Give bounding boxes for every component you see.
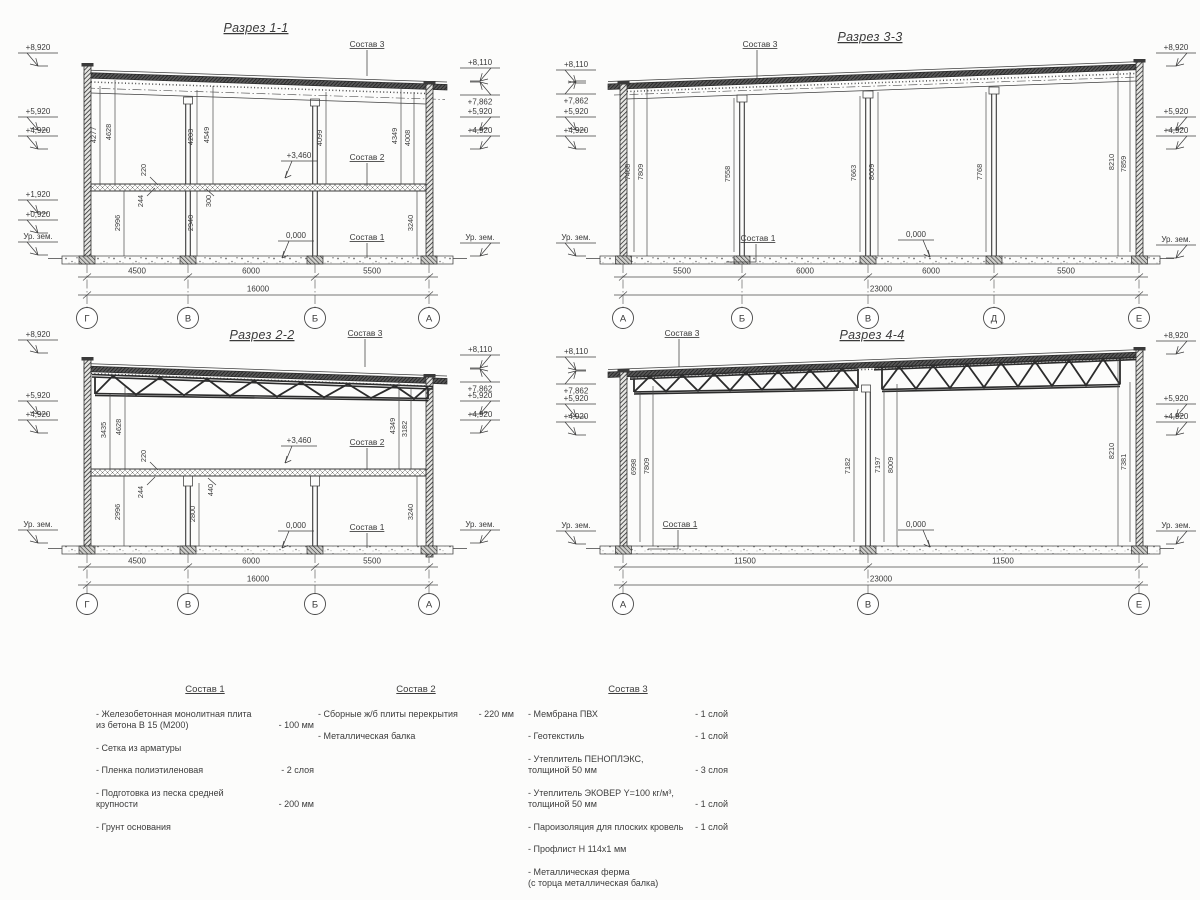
svg-text:+5,920: +5,920	[564, 107, 589, 116]
svg-text:4500: 4500	[128, 557, 146, 566]
svg-text:5500: 5500	[363, 267, 381, 276]
vdim-texts: 7468 7809 7558 7663 8009 7768 8210 7859	[623, 154, 1128, 182]
svg-text:+5,920: +5,920	[1164, 394, 1189, 403]
svg-text:+8,920: +8,920	[26, 43, 51, 52]
svg-text:11500: 11500	[992, 557, 1014, 566]
svg-text:+8,920: +8,920	[1164, 43, 1189, 52]
svg-text:6000: 6000	[242, 267, 260, 276]
svg-text:Е: Е	[1136, 314, 1142, 325]
elevation-marks-right: +8,110 +7,862 +5,920 +4,920 Ур. зем.	[460, 58, 500, 256]
section-title: Разрез 4-4	[840, 328, 905, 342]
grid-bubbles: Г В Б А	[77, 594, 440, 615]
span-dims: 4500 6000 5500 16000	[78, 264, 438, 307]
svg-text:2996: 2996	[113, 215, 122, 231]
legend-item: - Грунт основания	[96, 822, 314, 834]
legend-item: - Пароизоляция для плоских кровель- 1 сл…	[528, 822, 728, 834]
svg-text:7558: 7558	[723, 166, 732, 182]
sostav3-label: Состав 3	[350, 39, 385, 49]
structure	[48, 357, 467, 557]
svg-text:23000: 23000	[870, 285, 893, 294]
svg-text:4349: 4349	[390, 128, 399, 144]
svg-text:+8,920: +8,920	[26, 330, 51, 339]
structure	[586, 59, 1174, 264]
svg-text:Г: Г	[84, 600, 89, 611]
svg-text:Д: Д	[991, 314, 998, 325]
svg-text:+8,920: +8,920	[1164, 331, 1189, 340]
svg-text:16000: 16000	[247, 285, 270, 294]
svg-text:+4,920: +4,920	[1164, 126, 1189, 135]
svg-text:+8,110: +8,110	[468, 58, 493, 67]
svg-text:+7,862: +7,862	[468, 98, 493, 107]
svg-text:В: В	[865, 600, 871, 611]
level-zero: 0,000	[906, 520, 927, 529]
level-zero: 0,000	[286, 521, 307, 530]
svg-text:4277: 4277	[89, 127, 98, 143]
sections-drawing: Разрез 1-1 4277 4628 220 244 2	[0, 0, 1200, 660]
legend-sostav-1: Состав 1 - Железобетонная монолитная пли…	[96, 684, 314, 844]
section-1-1: Разрез 1-1 4277 4628 220 244 2	[18, 21, 500, 329]
svg-text:244: 244	[136, 195, 145, 207]
legend-item: - Сборные ж/б плиты перекрытия- 220 мм	[318, 709, 514, 721]
svg-text:440: 440	[206, 484, 215, 496]
svg-text:11500: 11500	[734, 557, 756, 566]
legend-sostav-3: Состав 3 - Мембрана ПВХ- 1 слой - Геотек…	[528, 684, 728, 900]
svg-text:2940: 2940	[186, 215, 195, 231]
svg-text:3240: 3240	[406, 215, 415, 231]
svg-text:6998: 6998	[629, 459, 638, 475]
svg-text:2800: 2800	[188, 506, 197, 522]
legend-item: - Железобетонная монолитная плита из бет…	[96, 709, 314, 732]
svg-text:7182: 7182	[843, 458, 852, 474]
svg-text:+4,920: +4,920	[26, 410, 51, 419]
svg-text:23000: 23000	[870, 575, 893, 584]
legend-heading: Состав 2	[318, 684, 514, 696]
svg-text:Б: Б	[312, 600, 318, 611]
elevation-marks-left: +8,920 +5,920 +4,920 +1,920 +0,920 Ур. з…	[18, 43, 58, 255]
svg-text:6000: 6000	[242, 557, 260, 566]
svg-text:5500: 5500	[673, 267, 691, 276]
svg-text:8210: 8210	[1107, 443, 1116, 459]
svg-text:+5,920: +5,920	[564, 394, 589, 403]
svg-text:Ур. зем.: Ур. зем.	[23, 520, 52, 529]
svg-text:Ур. зем.: Ур. зем.	[561, 521, 590, 530]
svg-text:2996: 2996	[113, 504, 122, 520]
svg-text:244: 244	[136, 486, 145, 498]
svg-text:300: 300	[204, 195, 213, 207]
legend-item: - Мембрана ПВХ- 1 слой	[528, 709, 728, 721]
section-title: Разрез 3-3	[838, 30, 903, 44]
span-dims: 5500 6000 6000 5500 23000	[614, 264, 1148, 307]
svg-text:220: 220	[139, 450, 148, 462]
elevation-marks-right: +8,110 +7,862 +5,920 +4,920 Ур. зем.	[460, 345, 500, 543]
svg-text:+4,920: +4,920	[1164, 412, 1189, 421]
levels-labels: Состав 3 Состав 1 0,000	[726, 39, 934, 262]
svg-text:А: А	[426, 314, 433, 325]
drawing-sheet: Разрез 1-1 4277 4628 220 244 2	[0, 0, 1200, 900]
svg-text:7663: 7663	[849, 165, 858, 181]
svg-text:+4,920: +4,920	[564, 126, 589, 135]
span-dims: 4500 6000 5500 16000	[78, 554, 438, 593]
svg-text:Ур. зем.: Ур. зем.	[23, 232, 52, 241]
svg-text:Ур. зем.: Ур. зем.	[1161, 235, 1190, 244]
level-floor: +3,460	[287, 151, 312, 160]
svg-text:+7,862: +7,862	[564, 97, 589, 106]
svg-text:4628: 4628	[104, 124, 113, 140]
svg-text:3435: 3435	[99, 422, 108, 438]
svg-text:4349: 4349	[388, 418, 397, 434]
svg-text:Ур. зем.: Ур. зем.	[561, 233, 590, 242]
elevation-marks-left: +8,110 +7,862 +5,920 +4,920 Ур. зем.	[556, 347, 596, 544]
svg-text:А: А	[620, 314, 627, 325]
svg-text:16000: 16000	[247, 575, 270, 584]
svg-text:+5,920: +5,920	[468, 391, 493, 400]
svg-text:4549: 4549	[202, 127, 211, 143]
svg-text:3240: 3240	[406, 504, 415, 520]
svg-text:7197: 7197	[873, 457, 882, 473]
svg-text:+4,920: +4,920	[468, 126, 493, 135]
section-title: Разрез 2-2	[230, 328, 295, 342]
legend-item: - Металлическая балка	[318, 731, 514, 743]
legend-item: - Профлист Н 114х1 мм	[528, 844, 728, 856]
svg-text:7468: 7468	[623, 164, 632, 180]
svg-text:А: А	[620, 600, 627, 611]
svg-text:8210: 8210	[1107, 154, 1116, 170]
svg-text:4008: 4008	[403, 130, 412, 146]
svg-text:4099: 4099	[315, 130, 324, 146]
svg-text:5500: 5500	[1057, 267, 1075, 276]
svg-text:+1,920: +1,920	[26, 190, 51, 199]
svg-text:+0,920: +0,920	[26, 210, 51, 219]
legend-item: - Геотекстиль- 1 слой	[528, 731, 728, 743]
sostav3-label: Состав 3	[348, 328, 383, 338]
svg-text:8009: 8009	[886, 457, 895, 473]
level-zero: 0,000	[286, 231, 307, 240]
svg-text:4500: 4500	[128, 267, 146, 276]
legend-item: - Подготовка из песка средней крупности-…	[96, 788, 314, 811]
span-dims: 11500 11500 23000	[614, 554, 1148, 593]
legend-item: - Металлическая ферма (с торца металличе…	[528, 867, 728, 890]
level-floor: +3,460	[287, 436, 312, 445]
elevation-marks-left: +8,920 +5,920 +4,920 Ур. зем.	[18, 330, 58, 543]
svg-text:Г: Г	[84, 314, 89, 325]
svg-text:6000: 6000	[796, 267, 814, 276]
svg-text:Ур. зем.: Ур. зем.	[1161, 521, 1190, 530]
svg-text:6000: 6000	[922, 267, 940, 276]
section-3-3: Разрез 3-3 7468 7809 7558 7663 8009 7768	[556, 30, 1196, 329]
legend-heading: Состав 3	[528, 684, 728, 696]
svg-text:7859: 7859	[1119, 156, 1128, 172]
svg-text:+8,110: +8,110	[468, 345, 493, 354]
section-2-2: Разрез 2-2 3435 4628 220 244 2996	[18, 328, 500, 615]
elevation-marks-right: +8,920 +5,920 +4,920 Ур. зем.	[1156, 331, 1196, 544]
level-zero: 0,000	[906, 230, 927, 239]
vdim-texts: 6998 7809 7182 7197 8009 8210 7381	[629, 443, 1128, 475]
svg-text:+4,920: +4,920	[26, 126, 51, 135]
elevation-marks-right: +8,920 +5,920 +4,920 Ур. зем.	[1156, 43, 1196, 258]
sostav3-label: Состав 3	[665, 328, 700, 338]
svg-text:Б: Б	[739, 314, 745, 325]
svg-text:+5,920: +5,920	[468, 107, 493, 116]
sostav1-label: Состав 1	[350, 522, 385, 532]
sostav1-label: Состав 1	[663, 519, 698, 529]
svg-text:7381: 7381	[1119, 454, 1128, 470]
legend-item: - Утеплитель ЭКОВЕР Y=100 кг/м³, толщино…	[528, 788, 728, 811]
sostav1-label: Состав 1	[741, 233, 776, 243]
sostav2-label: Состав 2	[350, 437, 385, 447]
levels-labels: +3,460 0,000 Состав 3 Состав 2 Состав 1	[278, 39, 385, 258]
svg-text:Ур. зем.: Ур. зем.	[465, 233, 494, 242]
svg-text:4628: 4628	[114, 419, 123, 435]
svg-text:+8,110: +8,110	[564, 347, 589, 356]
grid-bubbles: А В Е	[613, 594, 1150, 615]
svg-text:3182: 3182	[400, 421, 409, 437]
svg-text:В: В	[185, 600, 191, 611]
svg-text:+4,920: +4,920	[468, 410, 493, 419]
sostav2-label: Состав 2	[350, 152, 385, 162]
svg-text:+4,920: +4,920	[564, 412, 589, 421]
section-title: Разрез 1-1	[224, 21, 289, 35]
elevation-marks-left: +8,110 +7,862 +5,920 +4,920 Ур. зем.	[556, 60, 596, 256]
legend-item: - Пленка полиэтиленовая- 2 слоя	[96, 765, 314, 777]
svg-text:+5,920: +5,920	[1164, 107, 1189, 116]
legend-item: - Сетка из арматуры	[96, 743, 314, 755]
sostav1-label: Состав 1	[350, 232, 385, 242]
sostav3-label: Состав 3	[743, 39, 778, 49]
svg-text:Е: Е	[1136, 600, 1142, 611]
svg-text:5500: 5500	[363, 557, 381, 566]
svg-text:+5,920: +5,920	[26, 107, 51, 116]
svg-text:+5,920: +5,920	[26, 391, 51, 400]
svg-text:7768: 7768	[975, 164, 984, 180]
svg-text:В: В	[185, 314, 191, 325]
grid-bubbles: А Б В Д Е	[613, 308, 1150, 329]
section-4-4: Разрез 4-4 6998 7809 7182 7197 8009	[556, 328, 1196, 615]
vdim-texts: 4277 4628 220 244 2996 4203 4549 2940 30…	[89, 124, 415, 231]
svg-text:Ур. зем.: Ур. зем.	[465, 520, 494, 529]
legend-heading: Состав 1	[96, 684, 314, 696]
svg-text:В: В	[865, 314, 871, 325]
svg-text:4203: 4203	[186, 129, 195, 145]
svg-text:220: 220	[139, 164, 148, 176]
legend-item: - Утеплитель ПЕНОПЛЭКС, толщиной 50 мм- …	[528, 754, 728, 777]
svg-text:Б: Б	[312, 314, 318, 325]
levels-labels: +3,460 0,000 Состав 3 Состав 2 Состав 1	[278, 328, 385, 548]
legend-sostav-2: Состав 2 - Сборные ж/б плиты перекрытия-…	[318, 684, 514, 754]
svg-text:8009: 8009	[867, 164, 876, 180]
svg-text:А: А	[426, 600, 433, 611]
svg-text:+8,110: +8,110	[564, 60, 589, 69]
grid-bubbles: Г В Б А	[77, 308, 440, 329]
svg-text:7809: 7809	[642, 458, 651, 474]
svg-text:7809: 7809	[636, 164, 645, 180]
structure	[48, 63, 467, 264]
